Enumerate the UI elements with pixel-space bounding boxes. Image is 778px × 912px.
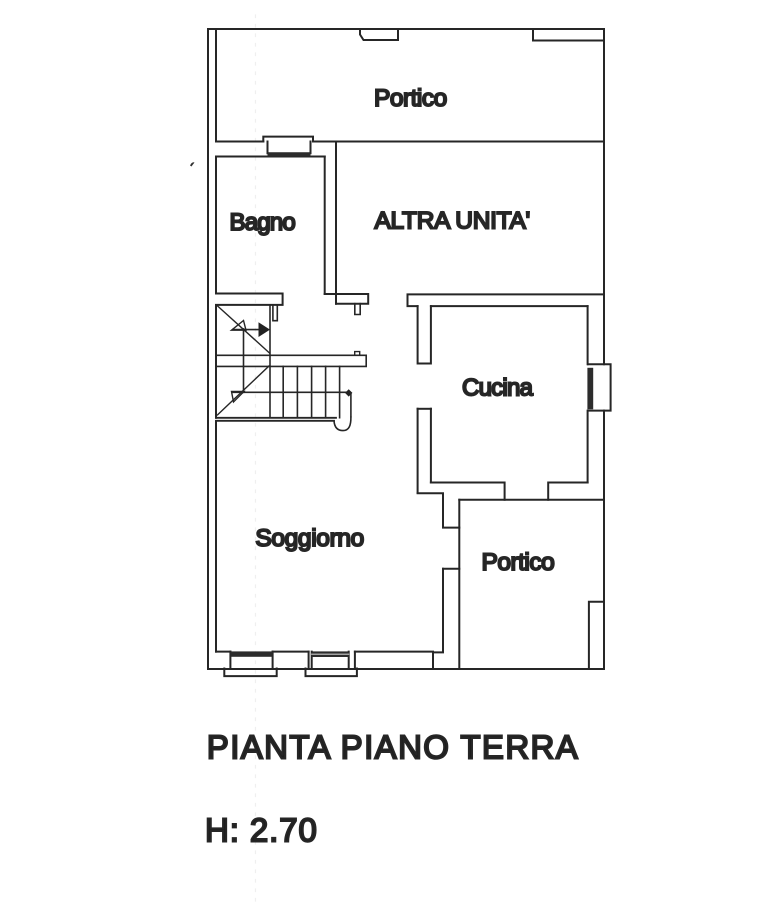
svg-text:ALTRA UNITA': ALTRA UNITA' (375, 208, 530, 235)
svg-text:Cucina: Cucina (462, 375, 534, 402)
svg-text:Bagno: Bagno (230, 209, 296, 236)
svg-text:Soggiorno: Soggiorno (255, 525, 364, 552)
svg-text:H: 2.70: H: 2.70 (205, 812, 318, 849)
svg-text:Portico: Portico (374, 85, 447, 112)
svg-text:PIANTA PIANO TERRA: PIANTA PIANO TERRA (207, 728, 579, 765)
svg-text:Portico: Portico (482, 549, 555, 576)
